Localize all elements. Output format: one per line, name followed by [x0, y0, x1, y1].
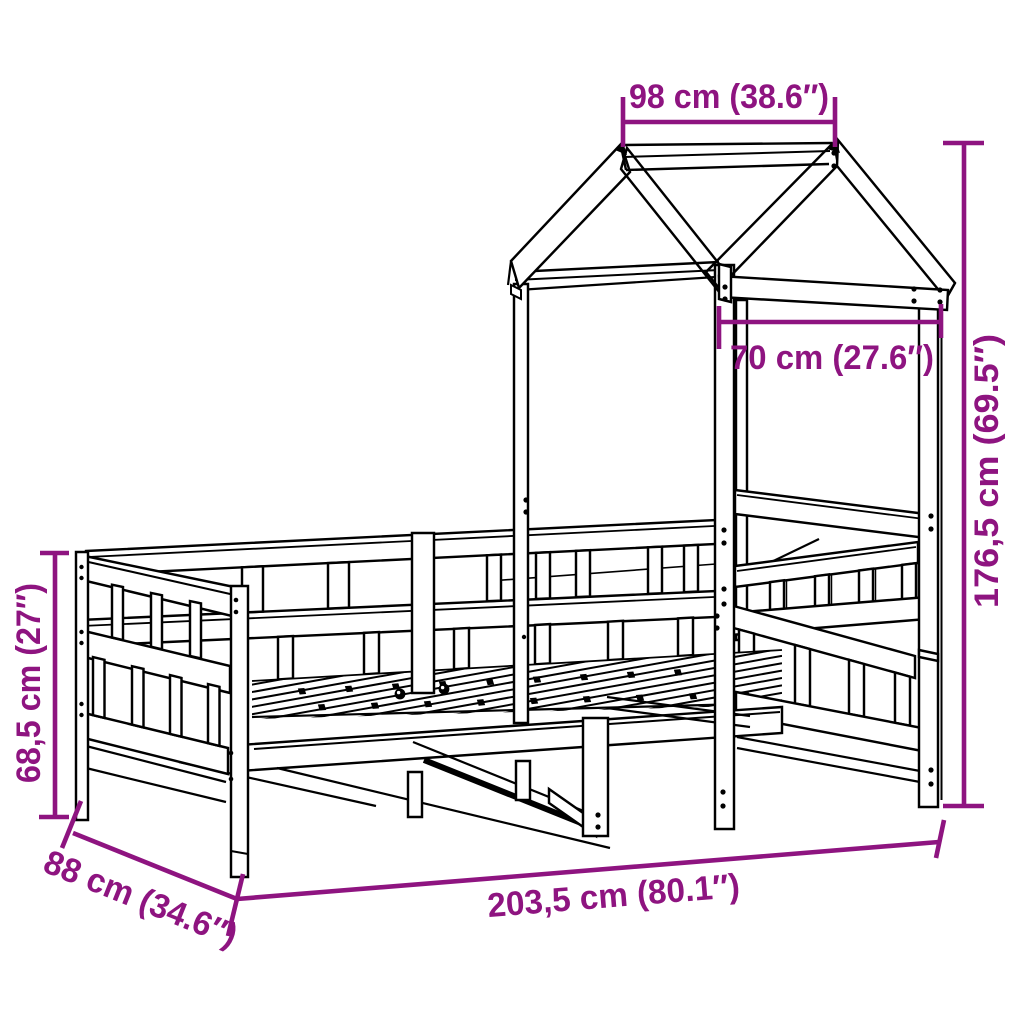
- svg-text:176,5 cm (69.5″): 176,5 cm (69.5″): [968, 334, 1006, 608]
- svg-text:98 cm (38.6″): 98 cm (38.6″): [629, 78, 829, 116]
- svg-text:70 cm (27.6″): 70 cm (27.6″): [730, 339, 934, 377]
- svg-text:68,5 cm (27″): 68,5 cm (27″): [10, 583, 48, 783]
